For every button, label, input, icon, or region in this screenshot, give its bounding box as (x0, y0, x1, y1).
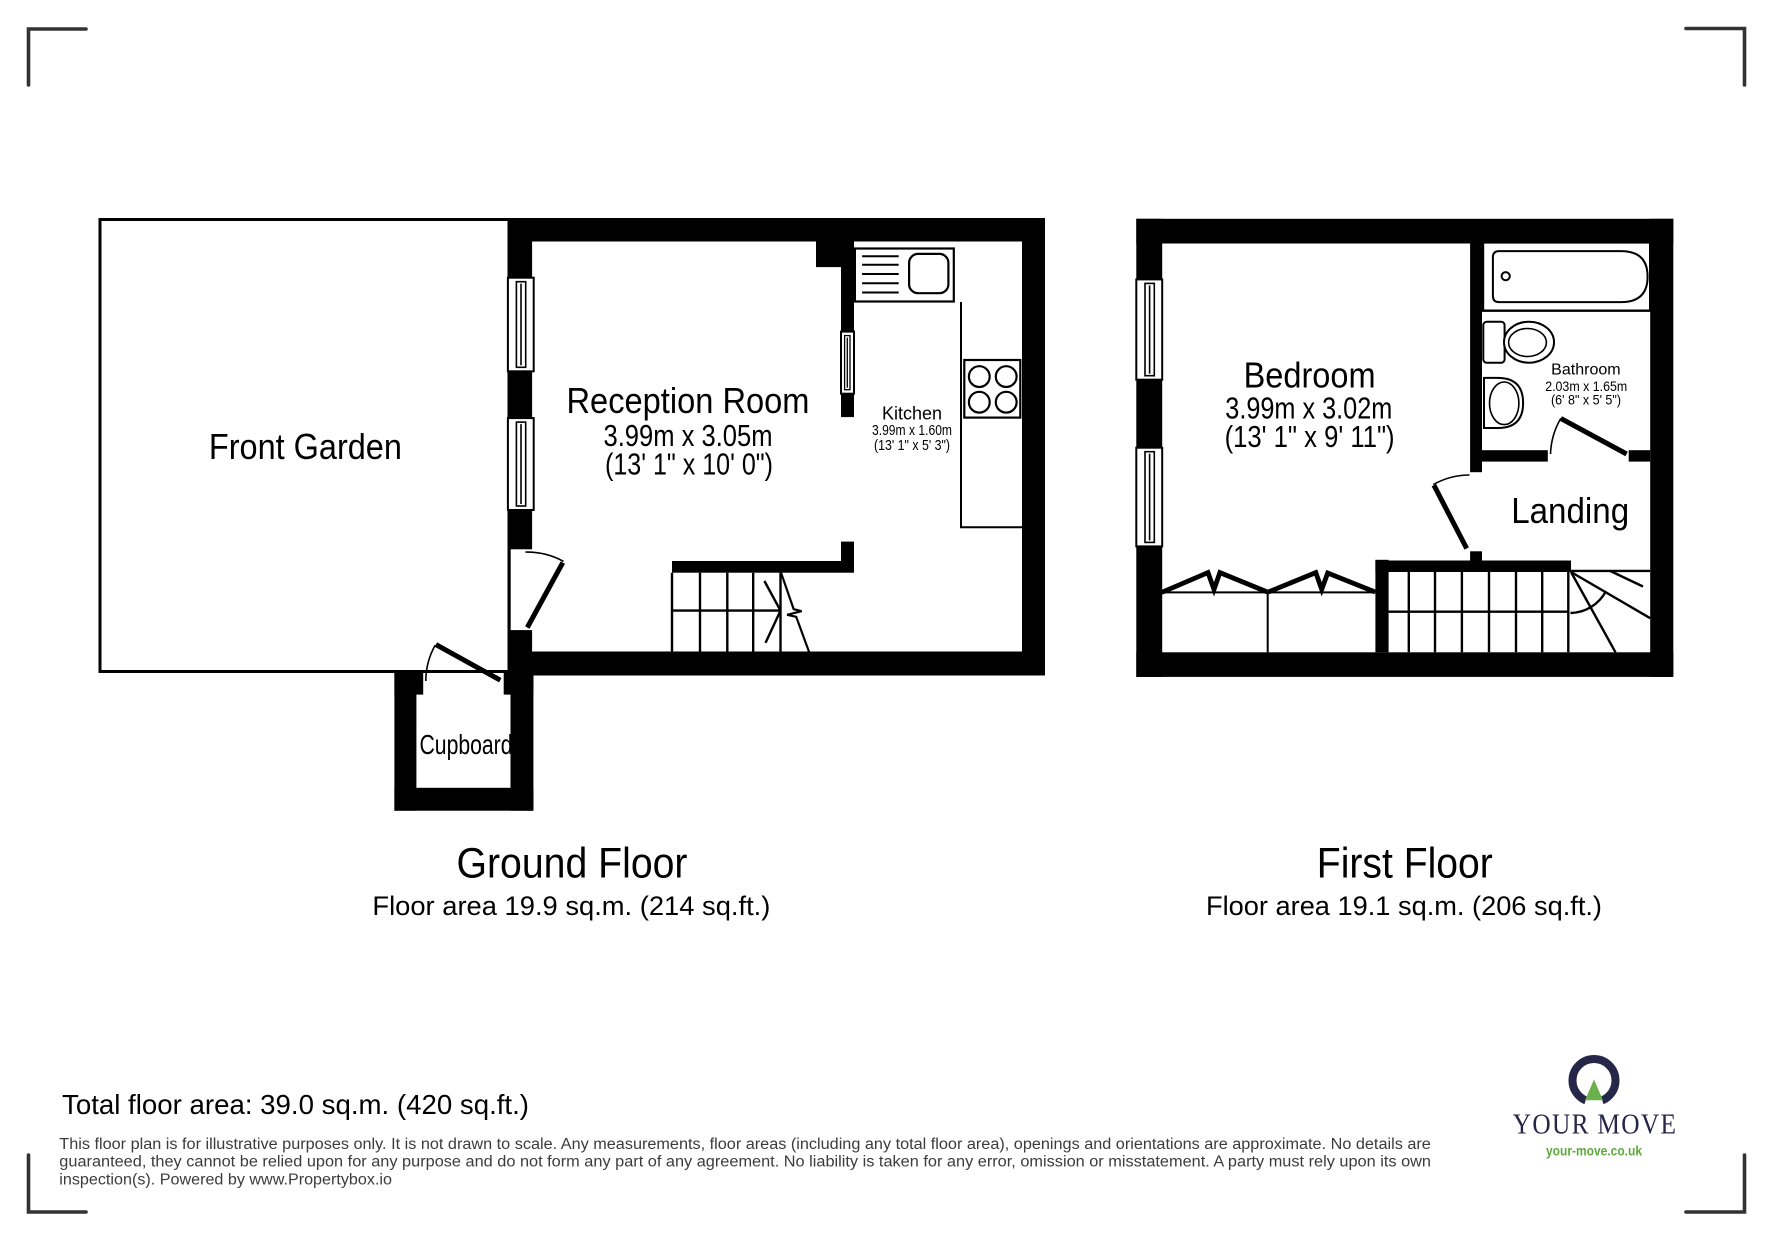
svg-text:Total floor area: 39.0 sq.m. (: Total floor area: 39.0 sq.m. (420 sq.ft.… (62, 1089, 529, 1120)
svg-text:Bathroom: Bathroom (1551, 362, 1621, 379)
svg-text:Reception Room: Reception Room (567, 380, 810, 421)
svg-text:Floor area 19.1 sq.m. (206 sq.: Floor area 19.1 sq.m. (206 sq.ft.) (1206, 891, 1602, 921)
svg-text:Kitchen: Kitchen (882, 404, 942, 424)
svg-text:Ground Floor: Ground Floor (457, 841, 688, 888)
svg-text:guaranteed, they cannot be rel: guaranteed, they cannot be relied upon f… (59, 1154, 1431, 1171)
svg-text:(6' 8" x 5' 5"): (6' 8" x 5' 5") (1551, 392, 1621, 407)
svg-text:3.99m x 1.60m: 3.99m x 1.60m (872, 423, 952, 439)
svg-text:First Floor: First Floor (1317, 841, 1493, 888)
svg-text:Bedroom: Bedroom (1244, 354, 1376, 395)
svg-text:your-move.co.uk: your-move.co.uk (1546, 1144, 1642, 1159)
svg-text:YOUR MOVE: YOUR MOVE (1513, 1109, 1678, 1141)
svg-text:Floor area 19.9 sq.m. (214 sq.: Floor area 19.9 sq.m. (214 sq.ft.) (372, 891, 770, 921)
svg-text:Landing: Landing (1511, 490, 1629, 531)
svg-text:Cupboard: Cupboard (420, 729, 513, 760)
svg-text:inspection(s). Powered by www.: inspection(s). Powered by www.Propertybo… (59, 1172, 392, 1189)
svg-text:Front Garden: Front Garden (209, 426, 402, 467)
svg-text:(13' 1" x 10' 0"): (13' 1" x 10' 0") (605, 448, 773, 482)
svg-text:This floor plan is for illustr: This floor plan is for illustrative purp… (59, 1136, 1431, 1153)
svg-text:(13' 1" x 5' 3"): (13' 1" x 5' 3") (874, 438, 950, 454)
svg-text:(13' 1" x 9' 11"): (13' 1" x 9' 11") (1225, 420, 1395, 454)
